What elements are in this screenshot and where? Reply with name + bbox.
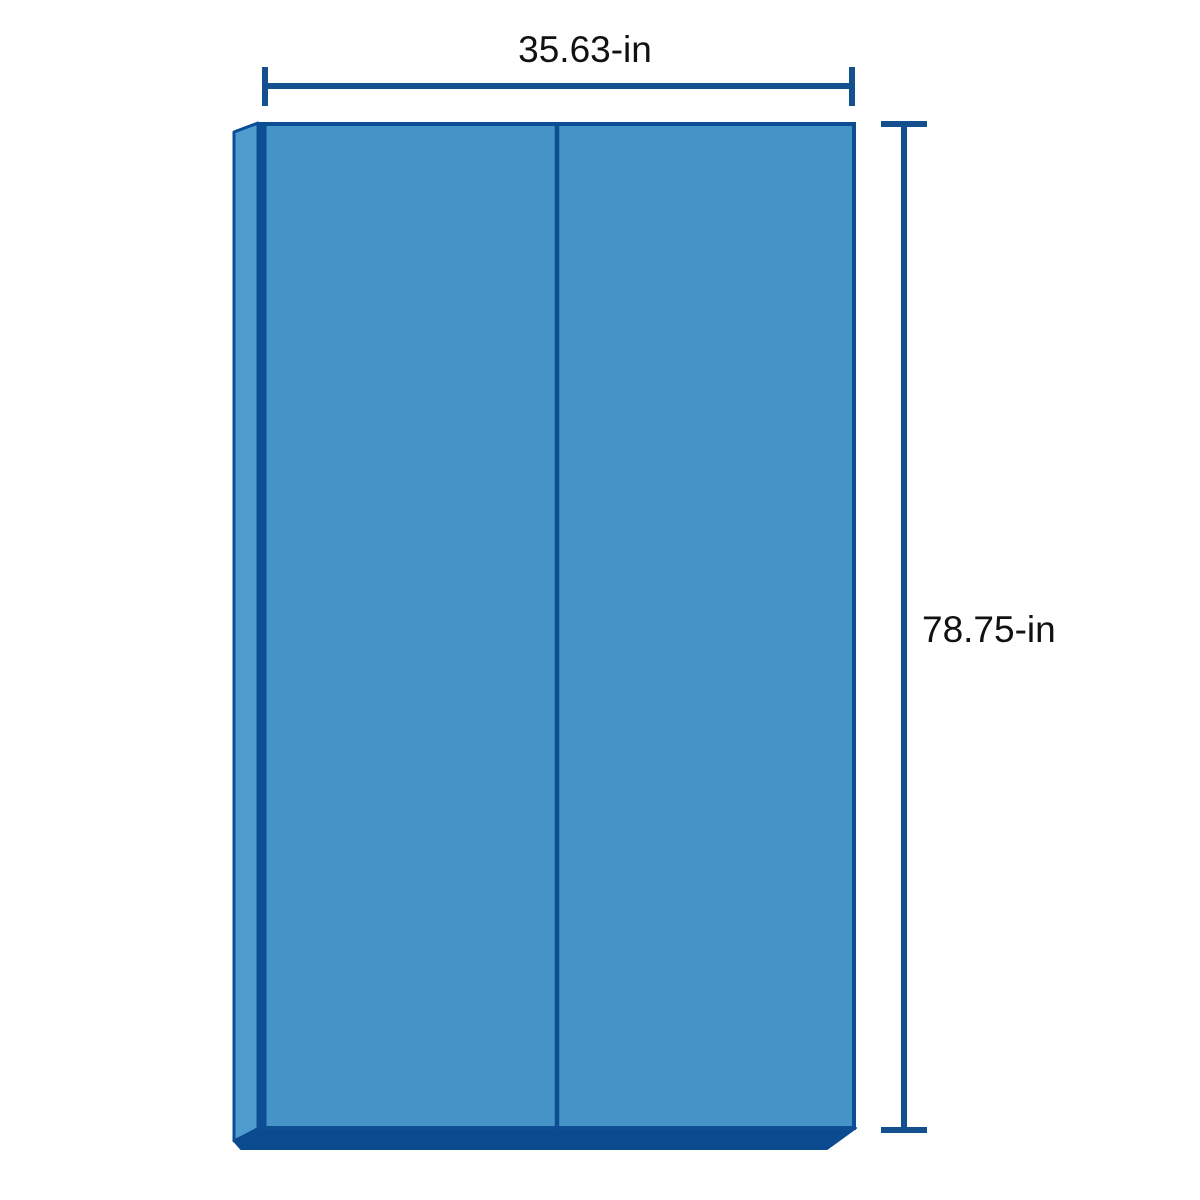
panel-bottom-edge-face xyxy=(234,1128,856,1149)
height-dimension-label: 78.75-in xyxy=(922,610,1056,650)
width-dimension xyxy=(265,67,852,106)
height-dimension xyxy=(881,123,927,1131)
diagram-canvas: 35.63-in 78.75-in xyxy=(0,0,1200,1200)
width-dimension-label: 35.63-in xyxy=(450,30,720,70)
product-dimension-diagram xyxy=(0,0,1200,1200)
panel-left-edge-face xyxy=(234,123,258,1141)
